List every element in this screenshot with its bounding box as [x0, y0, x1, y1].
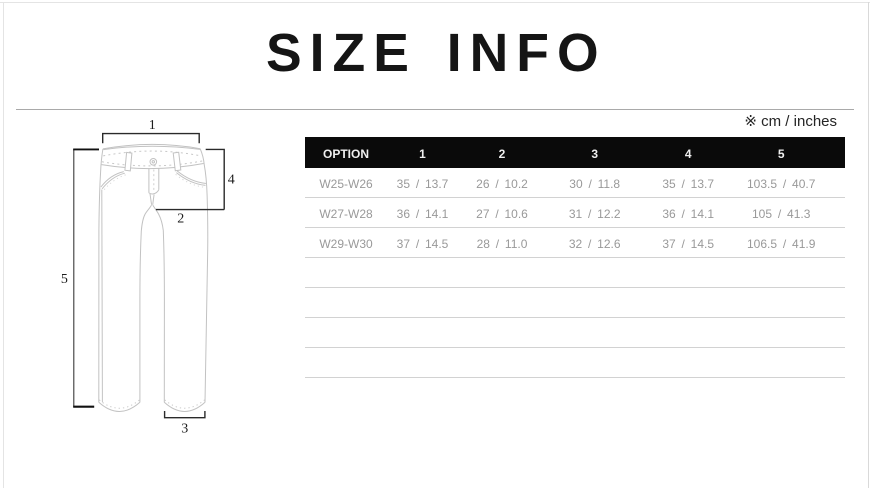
svg-text:2: 2 — [177, 212, 184, 227]
svg-text:1: 1 — [149, 118, 156, 133]
svg-text:3: 3 — [181, 421, 188, 436]
svg-text:5: 5 — [61, 272, 68, 287]
svg-text:4: 4 — [228, 173, 235, 188]
